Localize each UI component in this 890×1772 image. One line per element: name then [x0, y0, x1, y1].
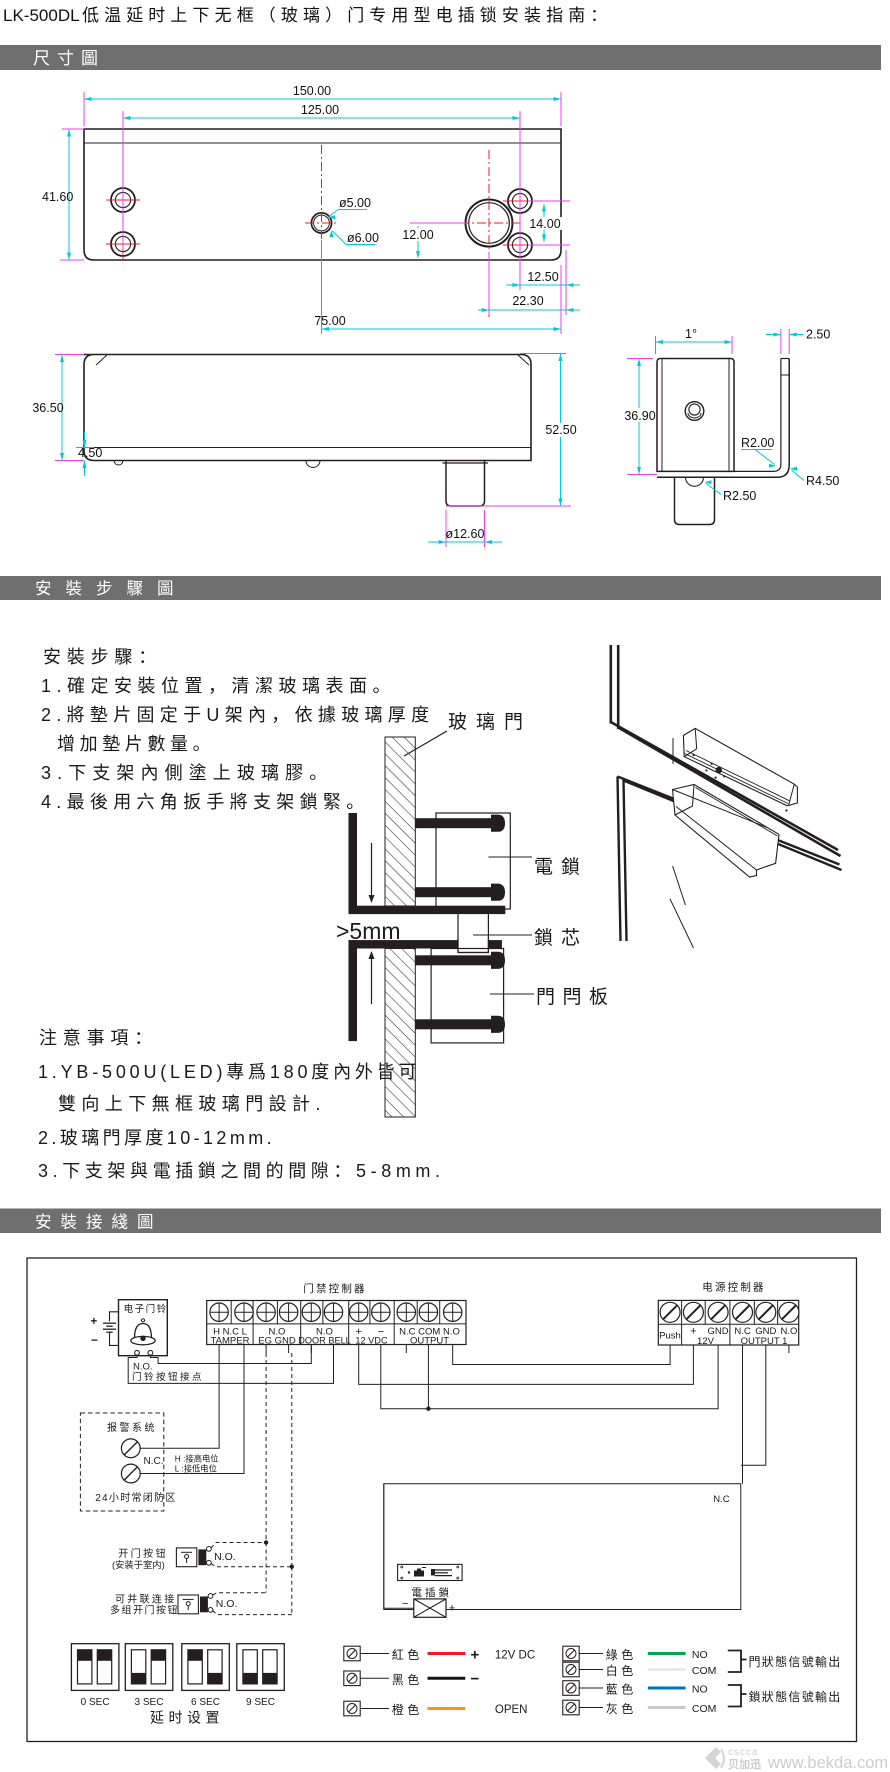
svg-text:12 VDC: 12 VDC [355, 1336, 388, 1346]
svg-text:75.00: 75.00 [314, 314, 345, 328]
svg-text:延时设置: 延时设置 [150, 1710, 224, 1726]
svg-text:14.00: 14.00 [529, 217, 560, 231]
svg-text:cscca: cscca [728, 1747, 759, 1758]
svg-text:1.YB-500U(LED)專爲180度內外皆可: 1.YB-500U(LED)專爲180度內外皆可 [38, 1062, 420, 1082]
svg-text:ø6.00: ø6.00 [347, 231, 379, 245]
svg-text:雙向上下無框玻璃門設計.: 雙向上下無框玻璃門設計. [58, 1094, 326, 1114]
svg-text:6 SEC: 6 SEC [191, 1697, 220, 1708]
svg-text:R2.50: R2.50 [723, 489, 756, 503]
svg-text:安裝步驟圖: 安裝步驟圖 [35, 579, 188, 598]
svg-text:4.最後用六角扳手將支架鎖緊。: 4.最後用六角扳手將支架鎖緊。 [41, 792, 370, 812]
svg-text:門閂板: 門閂板 [536, 986, 616, 1008]
svg-text:+: + [449, 1603, 455, 1615]
svg-text:2.將墊片固定于U架內，依據玻璃厚度: 2.將墊片固定于U架內，依據玻璃厚度 [41, 705, 434, 725]
svg-text:12V: 12V [697, 1336, 715, 1347]
svg-text:Push: Push [659, 1331, 681, 1342]
svg-text:LK-500DL: LK-500DL [3, 6, 80, 25]
svg-text:门铃按钮接点: 门铃按钮接点 [132, 1371, 204, 1383]
svg-text:125.00: 125.00 [301, 103, 339, 117]
svg-text:安裝步驟：: 安裝步驟： [43, 647, 162, 667]
svg-text:3.下支架與電插鎖之間的間隙：5-8mm.: 3.下支架與電插鎖之間的間隙：5-8mm. [38, 1161, 445, 1181]
svg-text:>5mm: >5mm [336, 918, 401, 944]
svg-text:COM: COM [692, 1665, 717, 1677]
svg-text:NO: NO [692, 1684, 708, 1696]
svg-text:尺寸圖: 尺寸圖 [33, 49, 105, 68]
svg-text:3 SEC: 3 SEC [135, 1697, 164, 1708]
svg-text:OPEN: OPEN [495, 1704, 528, 1716]
svg-text:报警系统: 报警系统 [107, 1421, 157, 1434]
svg-text:N.O.: N.O. [214, 1551, 236, 1563]
svg-text:黑色: 黑色 [392, 1673, 423, 1687]
svg-text:电源控制器: 电源控制器 [702, 1281, 766, 1294]
svg-text:12.50: 12.50 [527, 270, 558, 284]
svg-text:灰色: 灰色 [606, 1702, 637, 1716]
svg-text:低温延时上下无框（玻璃）门专用型电插锁安装指南：: 低温延时上下无框（玻璃）门专用型电插锁安装指南： [82, 6, 612, 25]
svg-text:4.50: 4.50 [78, 446, 102, 460]
svg-text:綠色: 綠色 [606, 1648, 637, 1662]
svg-text:門狀態信號輸出: 門狀態信號輸出 [749, 1654, 842, 1669]
svg-text:ø5.00: ø5.00 [339, 196, 371, 210]
svg-text:H :接高电位: H :接高电位 [175, 1454, 219, 1464]
svg-text:L :接低电位: L :接低电位 [175, 1464, 217, 1474]
svg-text:12.00: 12.00 [402, 228, 433, 242]
svg-text:41.60: 41.60 [42, 190, 73, 204]
svg-text:N.O.: N.O. [133, 1362, 153, 1373]
svg-text:電鎖: 電鎖 [534, 856, 588, 878]
svg-text:N.C.: N.C. [144, 1456, 164, 1467]
svg-text:电子门铃: 电子门铃 [124, 1303, 168, 1315]
svg-text:+: + [471, 1647, 480, 1664]
svg-text:−: − [91, 1333, 98, 1347]
svg-text:N.O.: N.O. [216, 1598, 238, 1610]
svg-text:2.50: 2.50 [806, 328, 830, 342]
svg-text:+: + [690, 1326, 696, 1338]
svg-text:贝加迅: 贝加迅 [728, 1757, 761, 1771]
svg-text:+: + [91, 1316, 98, 1328]
svg-text:玻璃門: 玻璃門 [448, 711, 532, 733]
svg-text:藍色: 藍色 [606, 1683, 637, 1697]
svg-text:DOOR BELL: DOOR BELL [298, 1336, 351, 1346]
svg-text:150.00: 150.00 [293, 84, 331, 98]
svg-text:安裝接綫圖: 安裝接綫圖 [35, 1213, 163, 1232]
svg-text:注意事項：: 注意事項： [39, 1028, 158, 1048]
svg-text:0 SEC: 0 SEC [81, 1697, 110, 1708]
svg-text:2.玻璃門厚度10-12mm.: 2.玻璃門厚度10-12mm. [38, 1128, 275, 1148]
svg-text:36.90: 36.90 [624, 409, 655, 423]
svg-text:22.30: 22.30 [512, 294, 543, 308]
svg-text:OUTPUT 1: OUTPUT 1 [741, 1336, 788, 1347]
svg-text:门禁控制器: 门禁控制器 [303, 1282, 367, 1295]
svg-text:www.bekda.com: www.bekda.com [767, 1754, 888, 1772]
svg-text:可并联连接: 可并联连接 [115, 1593, 177, 1606]
svg-text:紅色: 紅色 [392, 1648, 423, 1662]
svg-text:COM: COM [692, 1703, 717, 1715]
svg-text:鎖芯: 鎖芯 [534, 927, 588, 949]
svg-text:N.C: N.C [713, 1494, 730, 1505]
svg-text:R4.50: R4.50 [806, 474, 839, 488]
svg-text:52.50: 52.50 [545, 423, 576, 437]
svg-text:OUTPUT: OUTPUT [410, 1336, 449, 1347]
svg-text:1°: 1° [685, 327, 697, 341]
svg-text:12V DC: 12V DC [495, 1650, 535, 1662]
svg-text:24小时常闭防区: 24小时常闭防区 [95, 1491, 177, 1504]
svg-text:开门按钮: 开门按钮 [118, 1547, 168, 1560]
svg-text:白色: 白色 [606, 1663, 637, 1678]
svg-text:電插鎖: 電插鎖 [412, 1586, 453, 1599]
svg-text:增加墊片數量。: 增加墊片數量。 [57, 734, 215, 754]
svg-text:3.下支架內側塗上玻璃膠。: 3.下支架內側塗上玻璃膠。 [41, 762, 333, 783]
svg-text:橙色: 橙色 [392, 1702, 423, 1717]
svg-text:鎖狀態信號輸出: 鎖狀態信號輸出 [749, 1689, 842, 1704]
svg-text:EG GND: EG GND [258, 1336, 296, 1347]
svg-text:NO: NO [692, 1649, 708, 1661]
svg-text:−: − [471, 1671, 480, 1688]
svg-text:多组开门按钮: 多组开门按钮 [110, 1604, 179, 1617]
svg-text:1.確定安裝位置，清潔玻璃表面。: 1.確定安裝位置，清潔玻璃表面。 [41, 676, 396, 696]
svg-text:36.50: 36.50 [32, 401, 63, 415]
svg-text:R2.00: R2.00 [741, 436, 774, 450]
svg-text:ø12.60: ø12.60 [446, 527, 485, 541]
svg-text:9 SEC: 9 SEC [246, 1697, 275, 1708]
svg-text:(安装于室内): (安装于室内) [112, 1559, 165, 1570]
